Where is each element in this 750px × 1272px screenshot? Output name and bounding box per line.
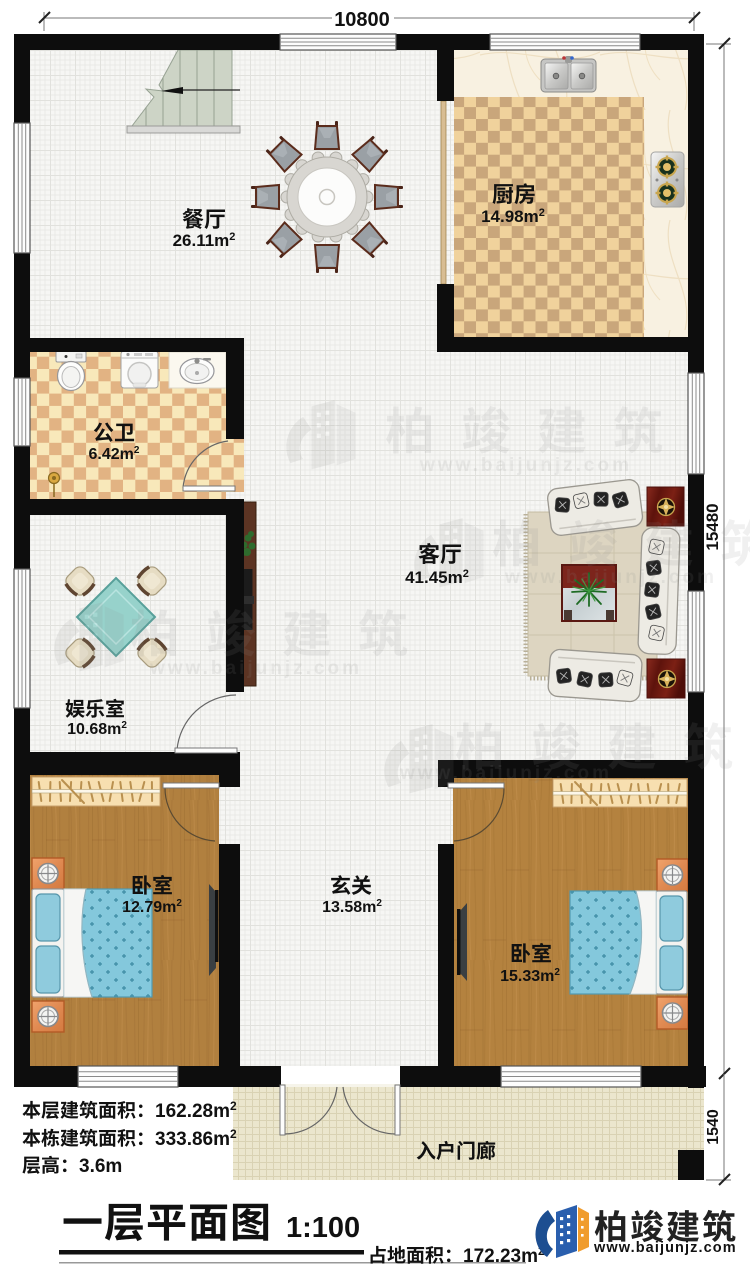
svg-text:6.42m2: 6.42m2: [89, 445, 140, 463]
svg-text:14.98m2: 14.98m2: [481, 207, 545, 226]
svg-text:26.11m2: 26.11m2: [173, 231, 236, 250]
svg-text:10.68m2: 10.68m2: [67, 720, 127, 738]
svg-text:3.6m: 3.6m: [79, 1156, 122, 1177]
svg-text:10800: 10800: [334, 9, 390, 31]
svg-text:333.86m2: 333.86m2: [155, 1127, 237, 1150]
svg-text:162.28m2: 162.28m2: [155, 1099, 237, 1122]
svg-text:1540: 1540: [705, 1109, 722, 1145]
svg-text:www.baijunjz.com: www.baijunjz.com: [419, 455, 632, 476]
svg-text:15480: 15480: [703, 503, 722, 550]
svg-text:41.45m2: 41.45m2: [405, 568, 469, 587]
svg-text:172.23m2: 172.23m2: [463, 1244, 545, 1267]
svg-text:www.baijunjz.com: www.baijunjz.com: [399, 763, 612, 784]
svg-text:12.79m2: 12.79m2: [122, 898, 182, 916]
svg-text:www.baijunjz.com: www.baijunjz.com: [593, 1240, 737, 1256]
svg-text:13.58m2: 13.58m2: [322, 898, 382, 916]
svg-text:www.baijunjz.com: www.baijunjz.com: [149, 658, 362, 679]
svg-text:1:100: 1:100: [286, 1212, 360, 1244]
svg-text:15.33m2: 15.33m2: [500, 967, 560, 985]
svg-text:www.baijunjz.com: www.baijunjz.com: [504, 567, 717, 588]
